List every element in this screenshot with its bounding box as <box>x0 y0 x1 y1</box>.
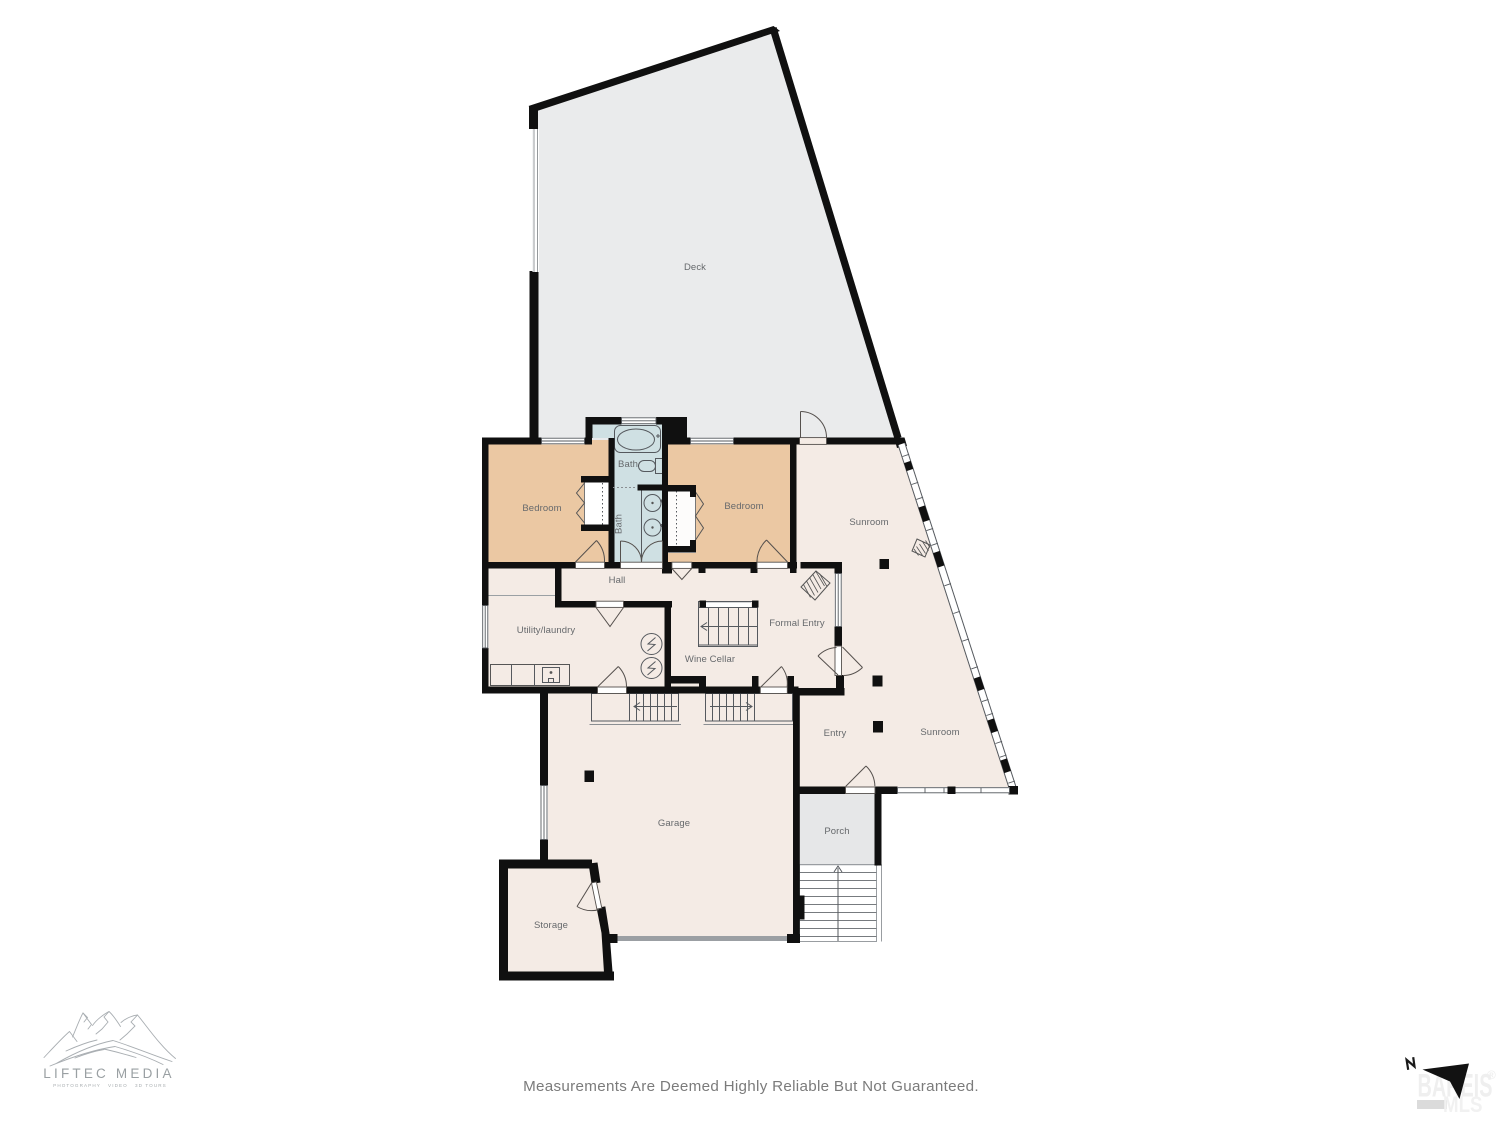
svg-text:Wine Cellar: Wine Cellar <box>685 654 735 665</box>
svg-text:Formal Entry: Formal Entry <box>769 618 825 629</box>
svg-text:Utility/laundry: Utility/laundry <box>517 625 576 636</box>
svg-text:Bath: Bath <box>618 459 638 470</box>
svg-text:Garage: Garage <box>658 818 690 829</box>
svg-text:Bath: Bath <box>614 514 625 534</box>
svg-text:Porch: Porch <box>824 826 849 837</box>
svg-text:Sunroom: Sunroom <box>920 727 959 738</box>
svg-text:Entry: Entry <box>824 728 847 739</box>
svg-text:PHOTOGRAPHY VIDEO 3D TOURS: PHOTOGRAPHY VIDEO 3D TOURS <box>53 1083 167 1088</box>
svg-text:Bedroom: Bedroom <box>522 503 561 514</box>
svg-text:Hall: Hall <box>609 575 626 586</box>
svg-text:Sunroom: Sunroom <box>849 517 888 528</box>
svg-text:®: ® <box>1487 1068 1496 1082</box>
svg-text:Bedroom: Bedroom <box>724 501 763 512</box>
svg-text:Deck: Deck <box>684 262 706 273</box>
svg-text:MLS: MLS <box>1443 1094 1482 1118</box>
svg-text:LIFTEC MEDIA: LIFTEC MEDIA <box>43 1066 174 1081</box>
svg-text:Storage: Storage <box>534 920 568 931</box>
svg-text:Measurements Are Deemed Highly: Measurements Are Deemed Highly Reliable … <box>523 1078 979 1095</box>
